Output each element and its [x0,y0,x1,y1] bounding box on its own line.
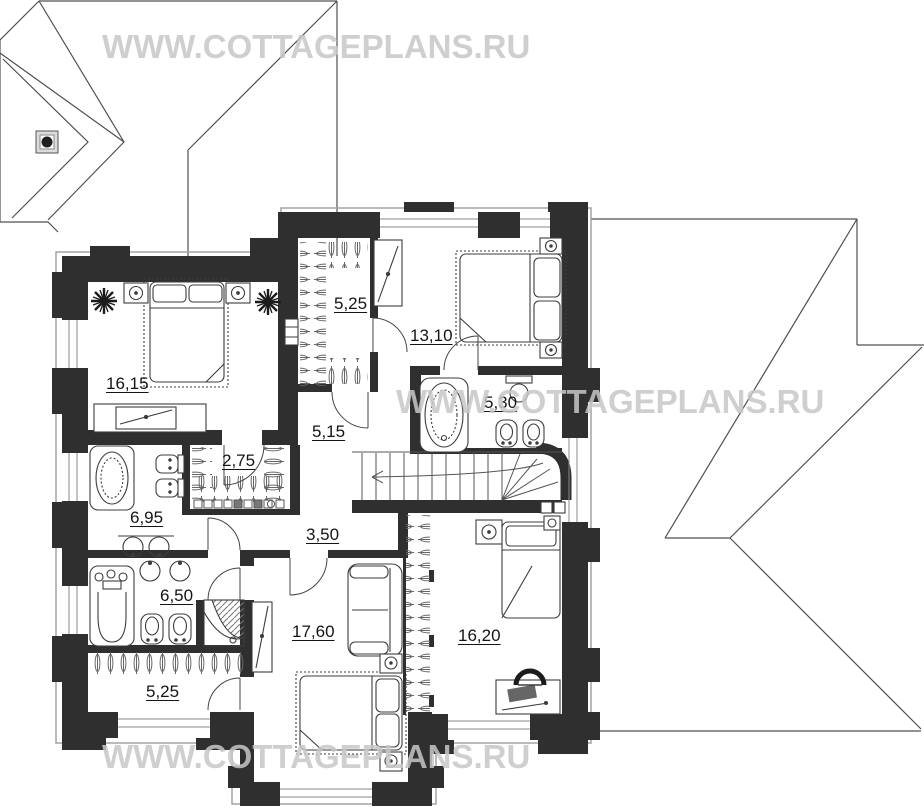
dresser-tv-icon [94,404,206,432]
chimney-icon [36,131,58,153]
sink-icon [140,561,190,581]
roof-right-outline [591,219,924,731]
room-label-2-75: 2,75 [222,451,255,471]
stairs [352,452,562,500]
single-bed-icon [502,522,560,618]
plant-icon [255,289,281,315]
double-bed-top-right [456,251,566,345]
floor-plan-drawing [0,0,924,808]
room-label-6-50: 6,50 [160,586,193,606]
wall-toilet-icon [156,455,184,497]
room-label-6-95: 6,95 [130,508,163,528]
tv-cabinet-icon [252,602,272,672]
stairs-direction-arrow [372,463,543,483]
room-label-17-60: 17,60 [292,622,335,642]
bathtub-icon [90,446,134,510]
nightstand-icon [476,520,502,544]
room-label-16-15: 16,15 [106,374,149,394]
room-label-5-30: 5,30 [484,393,517,413]
bidet-icon [496,420,544,447]
room-label-16-20: 16,20 [458,626,501,646]
toilet-icon [141,614,191,644]
shoe-shelf [194,500,284,508]
room-label-5-25-bottom: 5,25 [146,682,179,702]
sofa-icon [348,564,402,656]
room-label-13-10: 13,10 [410,326,453,346]
plant-icon [91,288,117,314]
tv-cabinet-icon [374,240,402,306]
bathtub-icon [420,378,468,452]
double-bed-bottom-middle [296,672,406,754]
room-label-5-25-top: 5,25 [334,294,367,314]
double-bed-top-left [144,279,228,387]
corner-shower-icon [204,600,244,646]
room-label-3-50: 3,50 [306,525,339,545]
jacuzzi-tub-icon [90,566,134,646]
room-label-5-15: 5,15 [312,422,345,442]
floor-plan-page: 16,15 5,25 13,10 5,15 5,30 2,75 6,95 3,5… [0,0,924,808]
